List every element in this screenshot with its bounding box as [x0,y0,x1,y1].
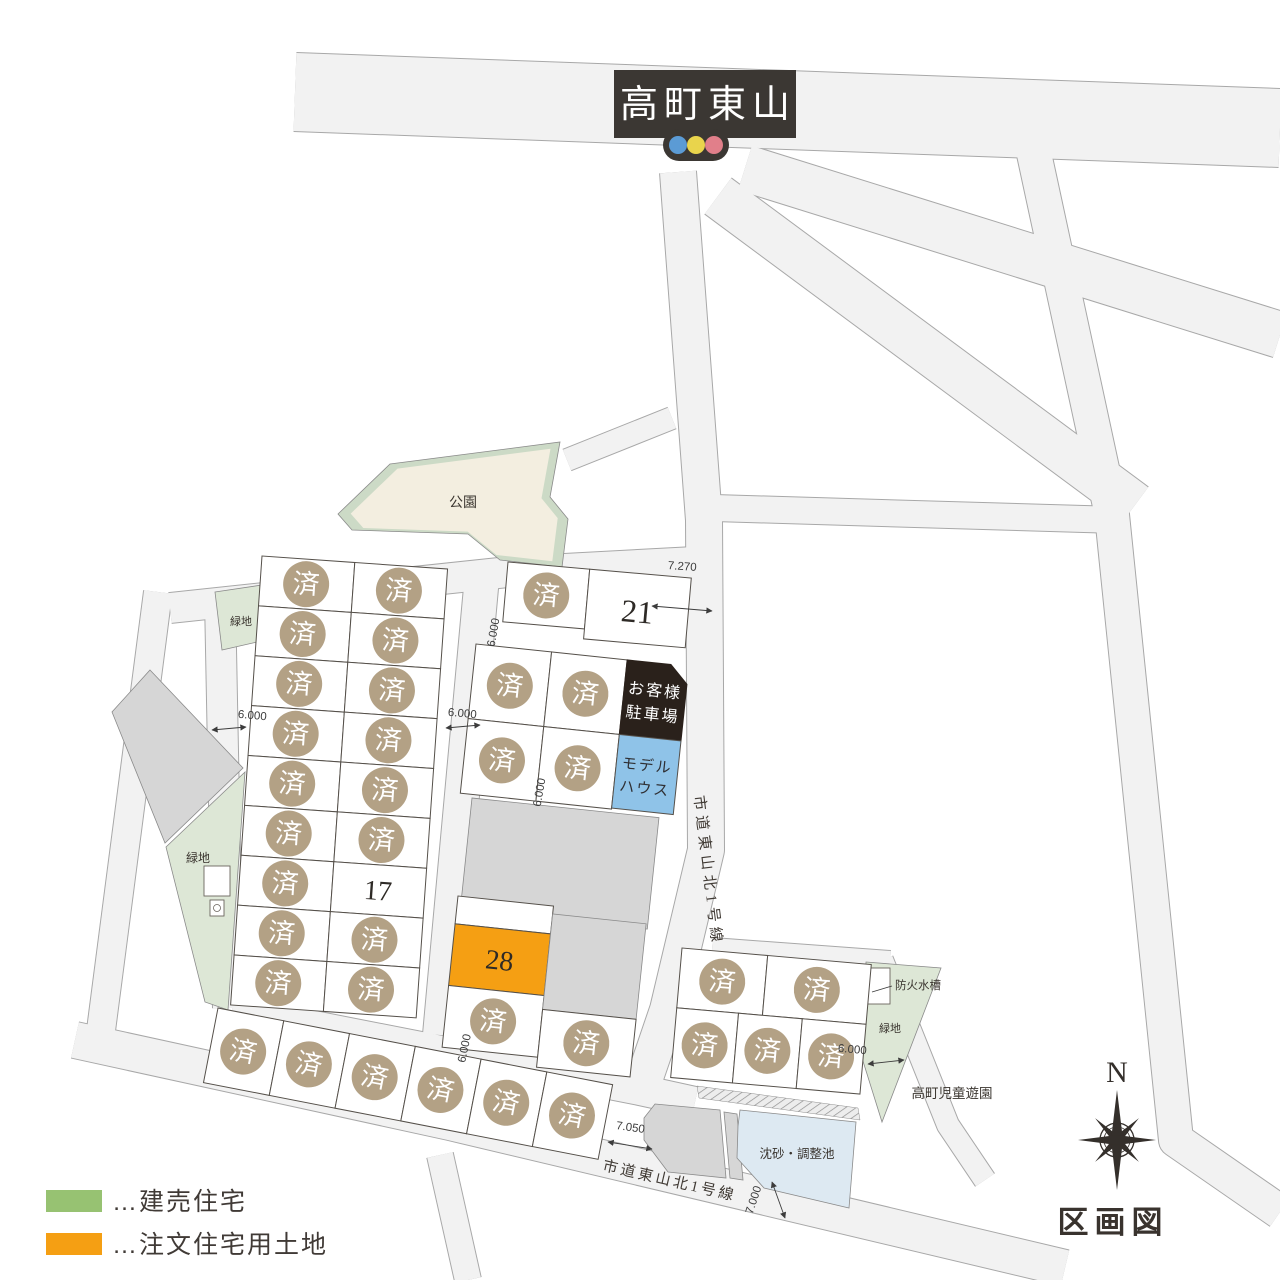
sold-label: 済 [274,818,303,850]
green-area-north-label: 緑地 [230,614,252,628]
dim-6000-f: 6.000 [837,1043,867,1057]
green-area-east-label: 緑地 [879,1021,901,1035]
sold-label: 済 [288,618,317,650]
dim-7270: 7.270 [667,560,697,574]
road-mid-horizontal [714,508,1118,520]
dim-6000-c: 6.000 [237,709,267,723]
sold-label: 済 [424,1073,456,1108]
sold-label: 済 [359,1060,391,1095]
utility-box [204,866,230,896]
sold-label: 済 [487,744,517,777]
traffic-light-blue [669,136,687,154]
sold-label: 済 [267,918,296,950]
sold-label: 済 [356,974,385,1006]
sold-label: 済 [531,580,561,612]
fire-tank-label: 防火水槽 [895,978,941,992]
utility-box-small [210,900,224,916]
legend-label-for-sale: …建売住宅 [112,1188,247,1216]
dim-6000-b: 6.000 [447,707,477,721]
children-park-label: 高町児童遊園 [912,1085,993,1101]
traffic-light-yellow [687,136,705,154]
sold-label: 済 [360,924,389,956]
park-label: 公園 [449,496,477,511]
sold-label: 済 [227,1034,259,1069]
sold-label: 済 [556,1098,588,1133]
sold-label: 済 [293,1047,325,1082]
lot-17-number: 17 [363,875,393,908]
lot-21-number: 21 [620,592,655,631]
compass-rose: N [1073,1056,1161,1190]
sold-label: 済 [367,824,396,856]
road-park-top [567,418,672,460]
pond-label: 沈砂・調整池 [759,1146,835,1161]
block-middle: お客様 駐車場 モデル ハウス 済済済済 [460,644,689,816]
block-left: 17 済済済済済済済済済済済済済済済済済 [231,556,448,1018]
sold-label: 済 [570,678,600,711]
sold-label: 済 [271,868,300,900]
compass-needle-ew [1078,1135,1156,1145]
legend-swatch-for-sale [46,1190,102,1212]
sold-label: 済 [292,568,321,600]
project-sign: 高町東山 [614,70,796,138]
lot-28-number: 28 [484,944,515,978]
sold-label: 済 [690,1029,720,1061]
sold-label: 済 [495,670,525,703]
map-title: 区画図 [1058,1205,1169,1240]
site-map: 公園 緑地 緑地 沈砂・調整池 防火水槽 緑地 高町児童遊園 [0,0,1280,1280]
road-south-branch [440,1155,468,1280]
sign-title: 高町東山 [620,84,796,126]
sold-label: 済 [478,1005,508,1038]
sold-label: 済 [281,718,310,750]
compass-north-label: N [1106,1056,1128,1089]
block-lower-middle: 28 済済 [441,896,647,1077]
legend: …建売住宅 …注文住宅用土地 [46,1188,328,1259]
sold-label: 済 [707,966,737,998]
traffic-light-icon [663,129,729,161]
sold-label: 済 [753,1035,783,1067]
sold-label: 済 [571,1027,601,1060]
sold-label: 済 [381,625,410,657]
sold-label: 済 [384,575,413,607]
gray-parcel-middle [543,914,647,1019]
green-area-west-label: 緑地 [186,850,210,865]
sold-label: 済 [374,725,403,757]
dim-7050: 7.050 [615,1120,645,1136]
sold-label: 済 [563,752,593,785]
sold-label: 済 [285,668,314,700]
sold-label: 済 [802,974,832,1006]
road-west-outer [100,592,158,1038]
legend-swatch-custom [46,1233,102,1255]
sold-label: 済 [264,967,293,999]
traffic-light-red [705,136,723,154]
block-right: 済済済済済 [671,948,872,1094]
sold-label: 済 [370,774,399,806]
sold-label: 済 [278,768,307,800]
legend-label-custom: …注文住宅用土地 [112,1231,328,1259]
sold-label: 済 [490,1086,522,1121]
sold-label: 済 [377,675,406,707]
